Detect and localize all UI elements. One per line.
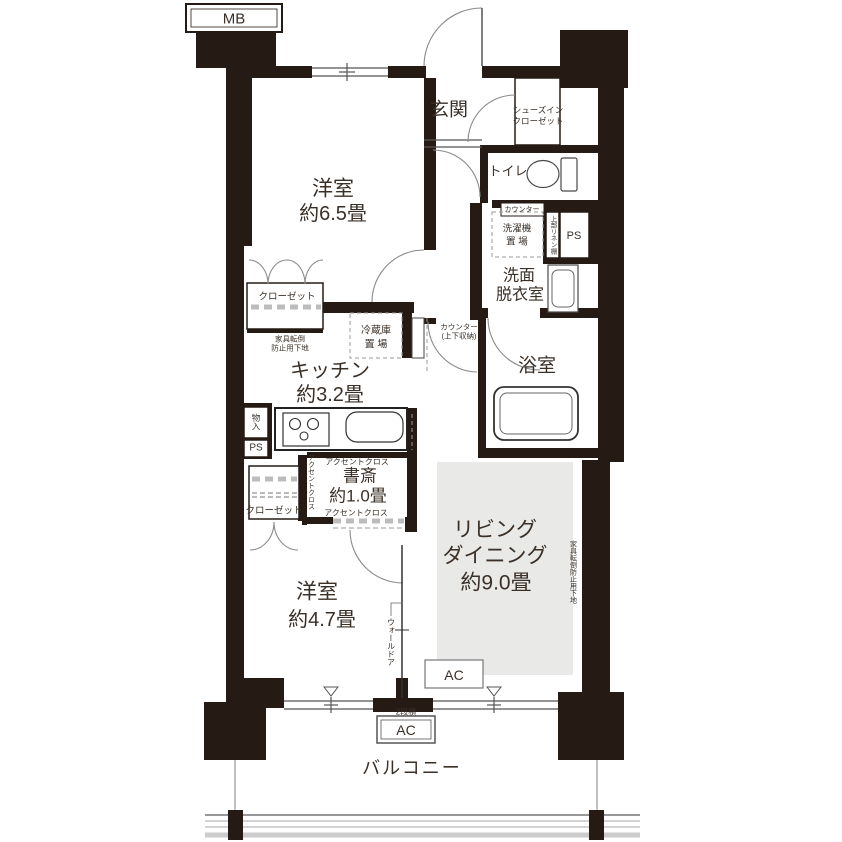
anti-tip-right-label: 家具転倒防止用下地 [570,540,578,604]
bedroom2-door-arc [350,530,403,583]
stove-burner [290,419,301,430]
accent-bottom-label: アクセントクロス [324,509,388,518]
stove-burner [300,432,308,440]
closet-upper-bifold-doors [249,260,323,284]
wall-segment [470,203,482,320]
study-name: 書斎 [343,467,377,486]
fridge-label-2: 置 場 [365,338,388,351]
kitchen-name: キッチン [290,360,370,382]
meter-box: MB [186,4,282,32]
ac-stack-note: 2段積 [396,707,416,717]
wall-segment [598,88,624,462]
closet-upper-label: クローゼット [258,291,315,303]
counter-tab-label: カウンター [505,205,540,214]
anti-tip-left-1: 家具転倒 [275,334,305,344]
floorplan-svg: MB [0,0,842,842]
closet-lower-door-arc [274,522,298,550]
toilet-label: トイレ [488,164,527,179]
living-label-3: 約9.0畳 [460,572,531,595]
washbasin-bowl [552,270,574,307]
wall-segment [244,66,312,78]
railing-post [589,810,604,840]
kitchen-size: 約3.2畳 [296,383,364,406]
window-marker-triangle [324,687,338,696]
wall-segment [305,517,333,524]
washer-label-1: 洗濯機 [503,223,532,235]
washer-space-outline [492,212,543,257]
wall-segment [322,302,414,313]
entrance-door-arc [424,8,482,66]
washer-label-2: 置 場 [506,236,528,248]
closet-lower-label: クローゼット [245,505,302,517]
railing-post [228,810,243,840]
ac-lower-label: AC [396,722,415,738]
counter-storage-label-2: (上下収納) [442,331,477,341]
wall-segment [558,692,624,760]
shoes-closet-door-arc [468,95,515,142]
washroom-label-1: 洗面 [503,267,535,285]
wall-door-leader [391,603,402,616]
wall-segment [478,448,600,458]
toilet-door-arc [433,150,480,197]
ps-left-label: PS [249,443,263,454]
accent-left-label: アクセントクロス [308,454,316,510]
living-label-1: リビング [453,519,537,542]
wall-segment [560,30,628,88]
ps-right-label: PS [567,230,582,242]
bedroom1-name: 洋室 [312,178,354,201]
bedroom2-name: 洋室 [296,581,338,604]
bedroom1-door-arc [372,250,424,302]
wall-segment [480,145,598,153]
wall-segment [482,66,562,78]
wall-segment [480,153,488,203]
bedroom1-size: 約6.5畳 [299,202,367,225]
fridge-label-1: 冷蔵庫 [361,324,391,337]
bathtub-inner [500,393,572,434]
closet-lower-door-arc [250,522,274,550]
window-marker-triangle [487,687,501,696]
wall-segment [226,66,252,246]
wall-segment [226,246,244,682]
shoes-closet-label-1: シューズイン [513,105,564,115]
balcony-label: バルコニー [362,758,462,778]
counter-cabinet-box [412,318,424,358]
toilet-bowl [527,161,559,188]
stove [283,413,329,446]
wall-segment [478,308,486,456]
wall-segment [582,460,610,710]
kitchen-sink [346,412,403,442]
shoes-closet-label-2: クローゼット [512,116,563,126]
mb-label: MB [223,11,246,28]
wall-segment [405,517,417,532]
living-label-2: ダイニング [443,545,548,568]
wall-segment [388,66,426,78]
stove-burner [308,419,319,430]
ac-living-label: AC [444,667,463,683]
mono-ire-label: 物入 [251,413,261,431]
wall-segment [407,408,417,524]
wall-segment [196,30,276,68]
bathroom-label: 浴室 [518,355,556,377]
living-dining-zone [437,462,573,675]
wall-segment [204,702,266,760]
accent-top-label: アクセントクロス [325,458,389,467]
wall-door-label: ウォールドア [387,618,396,666]
floorplan-canvas: MB [0,0,842,842]
study-size: 約1.0畳 [329,487,387,506]
wall-segment [402,313,412,358]
genkan-label: 玄関 [430,99,468,121]
washroom-label-2: 脱衣室 [496,286,544,304]
anti-tip-left-2: 防止用下地 [271,343,309,353]
counter-storage-label-1: カウンター [440,323,478,332]
bedroom2-size: 約4.7畳 [288,608,356,631]
toilet-tank [561,158,577,191]
